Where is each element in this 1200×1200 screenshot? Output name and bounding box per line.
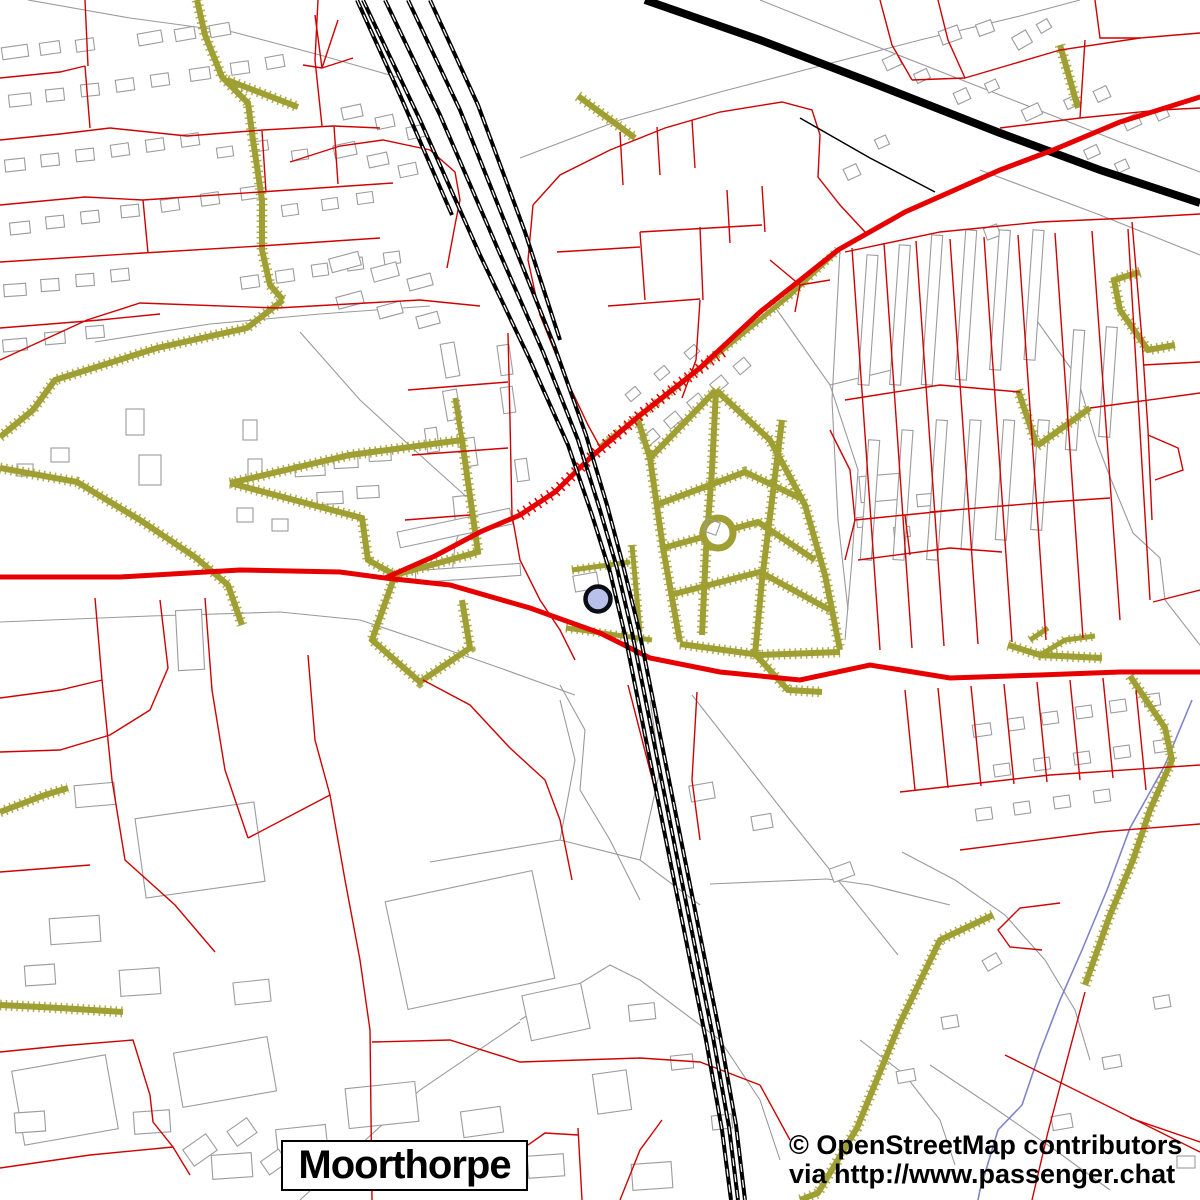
building-outline [135,802,265,898]
building-outline [500,386,516,413]
railway-ne-line [645,0,1200,203]
building-outline [45,215,64,229]
building-outline [1036,19,1051,34]
building-outline [189,67,210,82]
minor-road-line [110,126,380,136]
parcel-boundary-line [560,685,640,900]
building-outline [145,138,164,152]
building-outline [1113,745,1131,759]
minor-road-line [1080,40,1085,118]
building-outline [874,135,889,149]
building-outline [1013,801,1031,815]
map-view: Moorthorpe © OpenStreetMap contributors … [0,0,1200,1200]
building-outline [975,20,994,37]
minor-road-line [692,692,700,840]
map-canvas[interactable] [0,0,1200,1200]
minor-road-line [998,903,1060,950]
building-outline [230,61,249,75]
building-outline [654,365,670,380]
map-attribution: © OpenStreetMap contributors via http://… [789,1131,1189,1189]
parcel-boundary-line [560,700,575,840]
building-outline [243,420,257,440]
building-outline [75,148,94,162]
minor-road-line [628,685,718,1110]
building-outline [233,979,271,1005]
parcel-boundary-line [692,695,898,955]
building-outline [211,1153,253,1180]
minor-road-line [0,865,90,872]
building-outline [200,192,219,206]
minor-road-line [248,795,330,838]
minor-road-line [700,227,703,300]
building-outline [1114,159,1129,173]
station-marker[interactable] [586,587,611,612]
building-outline [733,357,751,374]
building-outline [240,275,259,289]
building-outline [407,273,433,291]
minor-road-line [0,128,110,140]
place-label-text: Moorthorpe [298,1143,510,1188]
building-outline [1153,995,1171,1010]
minor-road-line [938,688,948,788]
building-outline [914,69,931,84]
minor-road-line [640,225,762,232]
minor-road-line [533,102,865,232]
building-outline [424,427,439,452]
minor-road-line [1055,233,1083,638]
building-outline [440,342,460,378]
footpath-line [670,572,830,610]
building-outline [357,485,380,498]
building-outline [336,291,364,309]
building-outline [377,301,403,319]
minor-road-line [143,200,148,253]
minor-road-line [1095,0,1140,38]
building-outline [592,1070,631,1114]
building-outline [137,30,163,46]
minor-road-line [528,205,600,447]
building-outline [1021,103,1042,121]
minor-road-line [845,214,1200,252]
building-outline [829,862,854,883]
building-outline [1051,1113,1073,1130]
building-outline [1,44,28,60]
minor-road-line [308,655,330,795]
minor-road-line [303,65,322,68]
parcel-boundary-line [710,879,950,905]
building-outline [941,1015,959,1030]
building-outline [631,1162,673,1191]
building-outline [237,508,253,522]
minor-road-line [512,515,575,660]
building-outline [51,448,69,462]
building-outline [265,55,285,70]
building-outline [4,283,27,297]
minor-road-line [905,690,915,790]
building-outline [110,268,129,282]
building-outline [86,325,105,339]
building-outline [49,915,101,944]
minor-road-line [0,600,168,752]
minor-road-line [657,127,660,175]
building-outline [993,763,1011,777]
building-outline [3,338,28,352]
building-outline [39,41,60,56]
minor-road-line [727,190,730,243]
building-outline [311,263,329,277]
parcel-boundary-line [0,612,420,640]
building-outline [515,458,530,481]
footpath-texture [756,655,822,692]
place-label: Moorthorpe [281,1140,528,1191]
building-outline [1093,789,1111,803]
building-outline [1075,705,1093,719]
attribution-line-2: via http://www.passenger.chat [789,1160,1189,1189]
minor-road-line [322,20,338,68]
building-outline [1041,711,1059,725]
parcel-boundary-line [980,170,1200,255]
building-outline [272,519,288,531]
building-outline [385,871,555,1010]
building-outline [628,1003,656,1022]
building-outline [173,1037,276,1108]
building-outline [74,782,116,807]
minor-road-line [1153,590,1200,602]
building-outline [953,88,971,105]
minor-road-line [880,0,912,80]
building-outline [975,807,993,821]
minor-road-line [0,238,380,262]
building-outline [75,38,94,52]
building-outline [371,262,400,282]
minor-road-line [692,120,695,168]
building-outline [174,26,196,41]
building-outline [275,269,294,283]
building-outline [40,153,59,167]
building-outline [9,221,30,235]
minor-road-line [0,66,85,78]
building-outline [150,73,169,87]
building-outline [896,1069,916,1084]
building-outline [527,1154,564,1178]
building-outline [1099,327,1118,437]
minor-road-line [1143,362,1200,365]
building-outline [1053,795,1071,809]
minor-road-line [960,824,1200,850]
building-outline [522,983,590,1040]
building-outline [175,609,204,670]
building-outline [625,386,641,401]
building-outline [1024,230,1044,360]
building-outline [938,25,962,45]
building-outline [321,197,338,210]
minor-road-line [930,498,1110,512]
building-outline [126,409,144,435]
building-outline [416,311,440,328]
building-outline [398,162,418,177]
minor-road-line [205,598,248,838]
minor-road-line [143,183,393,200]
minor-road-line [578,1128,582,1200]
minor-road-line [640,232,645,300]
building-outline [858,255,878,385]
building-outline [80,83,99,97]
building-outline [497,344,513,375]
minor-road-line [557,247,640,252]
minor-road-line [1103,678,1113,778]
building-outline [1102,1055,1122,1070]
minor-road-line [412,448,508,455]
building-outline [4,158,25,172]
minor-road-line [0,598,102,698]
building-outline [209,22,231,37]
minor-road-line [608,299,700,306]
minor-road-line [0,314,160,328]
building-outline [8,93,31,107]
minor-road-line [408,382,508,390]
footpath-line [578,96,635,138]
building-outline [80,210,99,224]
building-outline [1109,699,1127,713]
building-outline [76,273,95,286]
minor-road-line [372,1040,760,1085]
building-outline [1093,86,1111,103]
building-outline [982,953,1002,971]
building-outline [45,88,64,102]
building-outline [345,1081,419,1128]
building-outline [24,964,55,986]
building-outline [843,164,861,181]
minor-road-line [423,680,572,880]
building-outline [14,1111,45,1133]
building-outline [216,146,233,158]
building-outline [367,152,389,168]
footpath-line [197,0,283,300]
building-outline [341,104,363,120]
building-outline [1084,145,1101,160]
building-outline [41,278,60,291]
building-outline [751,813,773,830]
building-outline [1012,30,1033,50]
building-outline [120,204,139,218]
minor-road-line [528,1133,578,1145]
building-outline [1073,751,1091,765]
building-outline [1033,757,1051,771]
footpath-line [1114,272,1175,350]
building-outline [119,968,161,997]
attribution-line-1: © OpenStreetMap contributors [789,1131,1189,1160]
building-outline [1007,717,1025,731]
minor-road-line [0,1147,173,1168]
minor-road-line [762,186,765,232]
footpath-line [663,522,815,560]
minor-road-line [620,132,623,185]
building-outline [227,1118,257,1147]
building-outline [139,455,161,485]
building-outline [990,230,1011,370]
building-outline [110,143,129,157]
minor-road-line [1148,435,1183,480]
building-outline [115,78,134,92]
building-outline [356,191,373,204]
building-outline [160,198,179,212]
minor-road-line [0,197,143,205]
building-outline [281,203,298,216]
building-outline [317,491,344,504]
building-outline [460,1106,503,1137]
building-outline [984,79,999,93]
